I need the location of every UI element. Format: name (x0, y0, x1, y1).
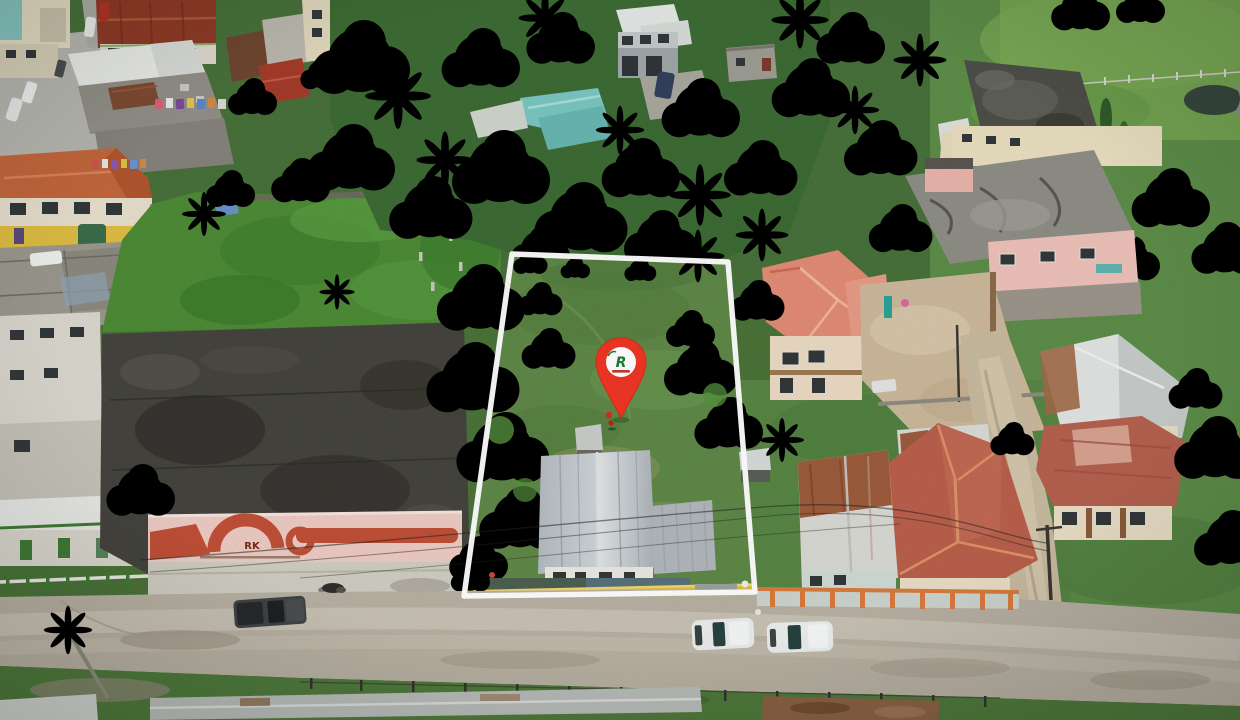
film-grain (0, 0, 1240, 720)
scene-canvas: RK (0, 0, 1240, 720)
aerial-photo: RK (0, 0, 1240, 720)
